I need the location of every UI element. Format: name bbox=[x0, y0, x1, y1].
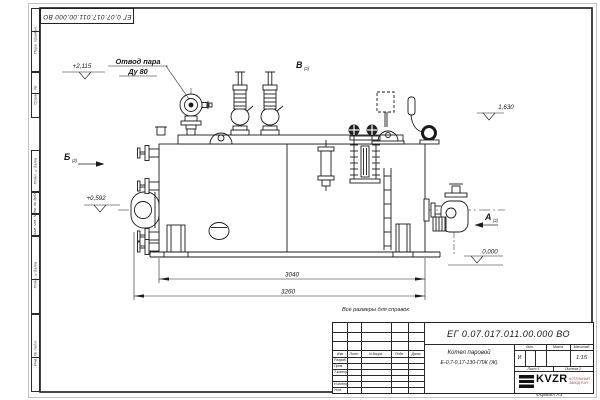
sheets-total: Листов 2 bbox=[553, 366, 593, 371]
side-box-label: Подп. и дата bbox=[33, 262, 38, 289]
view-label-b-sub: (2) bbox=[72, 158, 78, 163]
elevation-mark-shell-top bbox=[477, 113, 504, 120]
col-ndokum: N докум. bbox=[361, 350, 391, 357]
boiler-body bbox=[159, 135, 425, 252]
view-label-b: Б bbox=[64, 152, 70, 162]
view-label-a: А bbox=[484, 212, 491, 222]
side-box-label: Справ. № bbox=[33, 85, 38, 104]
col-data: Дата bbox=[408, 350, 424, 357]
kvzr-logo-sub2: ЗАВОД РЭП bbox=[569, 381, 590, 385]
side-box-label: Взам. инв. № bbox=[33, 213, 37, 236]
burner bbox=[131, 192, 159, 228]
view-arrow-a bbox=[475, 222, 499, 227]
lever-and-ring bbox=[408, 97, 439, 144]
top-left-designation-text: ЕГ 0.07.017.011.00.000 ВО bbox=[43, 13, 132, 20]
safety-valve-2 bbox=[261, 72, 283, 135]
side-box-podp-data-2: Подп. и дата bbox=[31, 236, 41, 314]
lit-value: И bbox=[514, 350, 525, 366]
steam-outlet-valve bbox=[155, 88, 212, 135]
elev-valves-text: +2,115 bbox=[73, 63, 92, 70]
drawing-sheet: Отвод пара Ду 80 3040 3260 +2,115 +0,592… bbox=[0, 0, 600, 400]
elevation-mark-burner bbox=[84, 205, 120, 212]
side-box-perv-primen: Перв. примен. bbox=[31, 8, 41, 72]
callout-steam-line1: Отвод пара bbox=[116, 57, 161, 66]
side-box-sprav-no: Справ. № bbox=[31, 72, 41, 118]
kvzr-logo-icon bbox=[519, 375, 534, 388]
view-label-a-sub: (2) bbox=[493, 218, 499, 223]
side-box-label: Перв. примен. bbox=[33, 26, 38, 54]
steam-outlet-callout-leader bbox=[108, 66, 189, 99]
format-label: Формат А3 bbox=[536, 393, 562, 398]
dim-3040-text: 3040 bbox=[285, 272, 300, 279]
product-type: Е-0,7-0,17-130-ГЛЖ (Ж) bbox=[424, 358, 514, 367]
view-label-v-sub: (2) bbox=[304, 66, 310, 71]
scale-value: 1:15 bbox=[570, 350, 593, 366]
side-box-label: Подп. и дата bbox=[33, 158, 38, 185]
side-box-label: Инв. № дубл. bbox=[33, 191, 37, 214]
elev-ground-text: 0,000 bbox=[482, 249, 498, 256]
dim-3260-text: 3260 bbox=[281, 289, 296, 296]
title-designation: ЕГ 0.07.017.011.00.000 ВО bbox=[424, 323, 593, 344]
safety-valve-1 bbox=[231, 72, 253, 135]
top-left-designation-stamp: ЕГ 0.07.017.011.00.000 ВО bbox=[40, 8, 134, 24]
side-box-label: Инв. № подл. bbox=[33, 340, 38, 367]
kvzr-logo-subtext: КОТЕЛЬНЫЙ ЗАВОД РЭП bbox=[569, 377, 590, 385]
sheet-number: Лист 1 bbox=[514, 366, 553, 371]
callout-steam-line2: Ду 80 bbox=[127, 67, 147, 76]
pump-assembly bbox=[424, 184, 468, 256]
role-utv: Утв. bbox=[334, 387, 361, 393]
product-name: Котел паровой bbox=[424, 348, 514, 358]
col-podp: Подп. bbox=[391, 350, 408, 357]
kvzr-logo-text: KVZR bbox=[536, 373, 568, 385]
view-label-v: В bbox=[296, 60, 303, 70]
elev-burner-text: +0,592 bbox=[86, 195, 106, 202]
side-box-inv-dubl: Инв. № дубл. bbox=[31, 192, 41, 214]
elevation-mark-valves bbox=[62, 72, 105, 79]
title-block: Изм Лист N докум. Подп. Дата Разраб. Про… bbox=[332, 322, 594, 394]
role-tkontr: Т.контр. bbox=[334, 369, 361, 375]
reference-note: Все размеры для справок bbox=[342, 307, 409, 313]
manhole-cover bbox=[209, 223, 229, 240]
elev-shell-top-text: 1,630 bbox=[498, 104, 514, 111]
col-list: Лист bbox=[347, 350, 361, 357]
side-box-podp-data-1: Подп. и дата bbox=[31, 150, 41, 192]
view-arrow-b bbox=[78, 161, 105, 166]
side-box-vzam-inv: Взам. инв. № bbox=[31, 214, 41, 236]
mass-header: Масса bbox=[546, 344, 570, 350]
elevation-mark-ground bbox=[448, 256, 503, 265]
col-izm: Изм bbox=[333, 350, 347, 357]
side-box-inv-podl: Инв. № подл. bbox=[31, 314, 41, 392]
